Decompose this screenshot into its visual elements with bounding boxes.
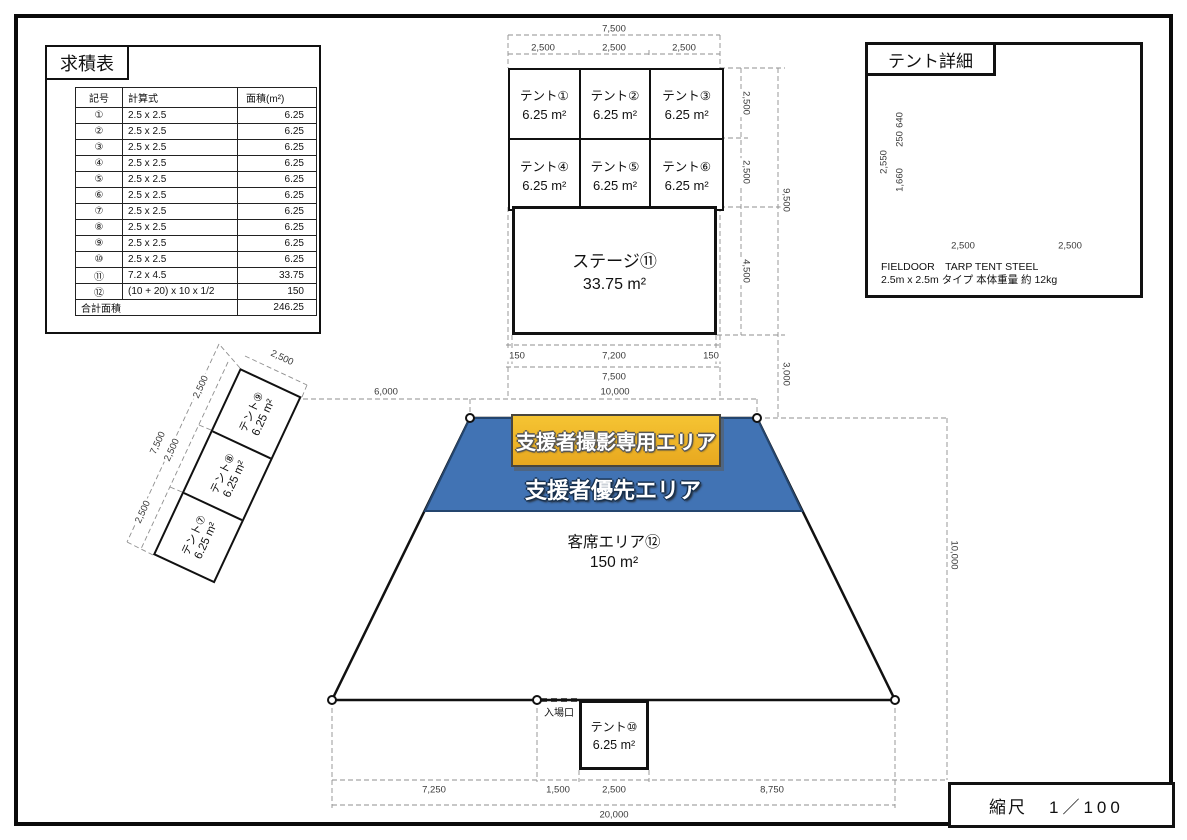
tent-area: 6.25 m² [522,178,566,193]
dim-label: 2,500 [1056,241,1084,252]
dim-label: 7,500 [600,372,628,383]
top-tent-cell: テント②6.25 m² [581,70,652,140]
area-table-cell: 2.5 x 2.5 [123,204,238,220]
tent-area: 6.25 m² [665,107,709,122]
dim-label: 3,000 [781,360,792,388]
tent-name: テント① [520,85,569,104]
dim-label: 10,000 [598,387,631,398]
top-tent-cell: テント⑤6.25 m² [581,140,652,210]
area-table-row: ⑪7.2 x 4.533.75 [76,268,317,284]
dim-label: 2,500 [600,785,628,796]
area-table-cell: 6.25 [238,204,317,220]
tent-product-line1: FIELDOOR TARP TENT STEEL [881,261,1038,274]
area-table-cell: 2.5 x 2.5 [123,140,238,156]
area-table-panel: 求積表 記号 計算式 面積(m²) ①2.5 x 2.56.25②2.5 x 2… [45,45,321,334]
top-tent-cell: テント③6.25 m² [651,70,722,140]
scale-label: 縮尺 [989,793,1027,818]
audience-area-label: 客席エリア⑫ 150 m² [514,530,714,572]
area-table-cell: 6.25 [238,188,317,204]
tent-detail-panel: テント詳細 FIELDOOR TARP TENT STEEL 2.5m x 2.… [865,42,1143,298]
tent-area: 6.25 m² [665,178,709,193]
area-table-row: ⑨2.5 x 2.56.25 [76,236,317,252]
top-tent-cell: テント①6.25 m² [510,70,581,140]
area-table-row: ④2.5 x 2.56.25 [76,156,317,172]
priority-area-label: 支援者優先エリア [525,478,701,503]
area-table-cell: 2.5 x 2.5 [123,236,238,252]
photo-area-box: 支援者撮影専用エリア [511,414,721,467]
area-table-header-row: 記号 計算式 面積(m²) [76,88,317,108]
area-table-row: ⑦2.5 x 2.56.25 [76,204,317,220]
area-table-cell: 2.5 x 2.5 [123,252,238,268]
area-table-cell: ③ [76,140,123,156]
dim-label: 7,200 [600,351,628,362]
area-table-cell: 2.5 x 2.5 [123,188,238,204]
total-value: 246.25 [238,300,317,316]
priority-area-label-wrap: 支援者優先エリア [463,473,763,505]
area-table-cell: 6.25 [238,220,317,236]
tent-name: テント④ [520,156,569,175]
area-table-row: ⑫(10 + 20) x 10 x 1/2150 [76,284,317,300]
dim-label: 2,500 [670,43,698,54]
tent-name: テント③ [662,85,711,104]
area-table-cell: 6.25 [238,108,317,124]
area-table-cell: 2.5 x 2.5 [123,124,238,140]
dim-label: 2,550 [879,148,890,176]
tent-product-line2: 2.5m x 2.5m タイプ 本体重量 約 12kg [881,274,1057,287]
area-table-row: ①2.5 x 2.56.25 [76,108,317,124]
area-table-row: ⑧2.5 x 2.56.25 [76,220,317,236]
dim-label: 2,500 [741,89,752,117]
area-table-cell: 2.5 x 2.5 [123,108,238,124]
col-formula: 計算式 [123,88,238,108]
dim-label: 8,750 [758,785,786,796]
area-table-cell: ⑪ [76,268,123,284]
scale-value: 1／100 [1049,793,1124,818]
tent-name: テント⑥ [662,156,711,175]
dim-label: 250 [895,129,906,149]
area-table-cell: 150 [238,284,317,300]
area-table-row: ②2.5 x 2.56.25 [76,124,317,140]
top-tent-cell: テント④6.25 m² [510,140,581,210]
top-tent-grid: テント①6.25 m²テント②6.25 m²テント③6.25 m²テント④6.2… [508,68,724,211]
area-table-title: 求積表 [45,45,129,80]
area-table-row: ⑩2.5 x 2.56.25 [76,252,317,268]
dim-label: 1,500 [544,785,572,796]
area-table-cell: 6.25 [238,172,317,188]
area-table-cell: 2.5 x 2.5 [123,220,238,236]
area-table-cell: ⑤ [76,172,123,188]
area-table-row: ⑥2.5 x 2.56.25 [76,188,317,204]
area-table-cell: ⑦ [76,204,123,220]
tent-area: 6.25 m² [593,178,637,193]
dim-label: 20,000 [597,810,630,821]
bottom-tent-box: テント⑩ 6.25 m² [579,700,649,770]
area-table-cell: 6.25 [238,124,317,140]
area-table-cell: ⑧ [76,220,123,236]
area-table-cell: ⑥ [76,188,123,204]
dim-label: 150 [507,351,527,362]
dim-label: 2,500 [741,158,752,186]
scale-box: 縮尺 1／100 [948,782,1175,828]
area-table: 記号 計算式 面積(m²) ①2.5 x 2.56.25②2.5 x 2.56.… [75,87,317,316]
dim-label: 9,500 [781,186,792,214]
area-table-cell: ⑨ [76,236,123,252]
area-table-cell: 2.5 x 2.5 [123,156,238,172]
audience-name: 客席エリア⑫ [514,530,714,552]
photo-area-label: 支援者撮影専用エリア [516,426,716,455]
tent-name: テント② [591,85,640,104]
bottom-tent-area: 6.25 m² [593,738,635,752]
area-table-cell: 6.25 [238,156,317,172]
area-table-cell: ④ [76,156,123,172]
entrance-label: 入場口 [544,704,574,719]
area-table-cell: 6.25 [238,236,317,252]
audience-area-value: 150 m² [514,554,714,572]
area-table-cell: 6.25 [238,140,317,156]
total-label: 合計面積 [76,300,238,316]
dim-label: 6,000 [372,387,400,398]
tent-detail-title: テント詳細 [865,42,996,76]
area-table-row: ③2.5 x 2.56.25 [76,140,317,156]
area-table-cell: 6.25 [238,252,317,268]
area-table-row: ⑤2.5 x 2.56.25 [76,172,317,188]
dim-label: 640 [895,110,906,130]
tent-area: 6.25 m² [593,107,637,122]
tent-name: テント⑤ [591,156,640,175]
dim-label: 2,500 [600,43,628,54]
area-table-cell: ⑩ [76,252,123,268]
area-table-cell: ⑫ [76,284,123,300]
dim-label: 2,500 [529,43,557,54]
dim-label: 1,660 [895,166,906,194]
area-table-cell: 7.2 x 4.5 [123,268,238,284]
area-table-total-row: 合計面積 246.25 [76,300,317,316]
dim-label: 10,000 [949,538,960,571]
area-table-cell: ② [76,124,123,140]
area-table-cell: ① [76,108,123,124]
area-table-cell: 2.5 x 2.5 [123,172,238,188]
stage-box: ステージ⑪ 33.75 m² [512,206,717,335]
col-symbol: 記号 [76,88,123,108]
dim-label: 150 [701,351,721,362]
top-tent-cell: テント⑥6.25 m² [651,140,722,210]
col-area: 面積(m²) [238,88,317,108]
bottom-tent-name: テント⑩ [591,718,638,735]
dim-label: 2,500 [949,241,977,252]
layout-drawing-sheet: 求積表 記号 計算式 面積(m²) ①2.5 x 2.56.25②2.5 x 2… [0,0,1187,840]
dim-label: 7,500 [600,24,628,35]
area-table-cell: 33.75 [238,268,317,284]
tent-area: 6.25 m² [522,107,566,122]
dim-label: 7,250 [420,785,448,796]
stage-area: 33.75 m² [583,276,646,294]
stage-name: ステージ⑪ [572,247,657,272]
area-table-cell: (10 + 20) x 10 x 1/2 [123,284,238,300]
dim-label: 4,500 [741,257,752,285]
